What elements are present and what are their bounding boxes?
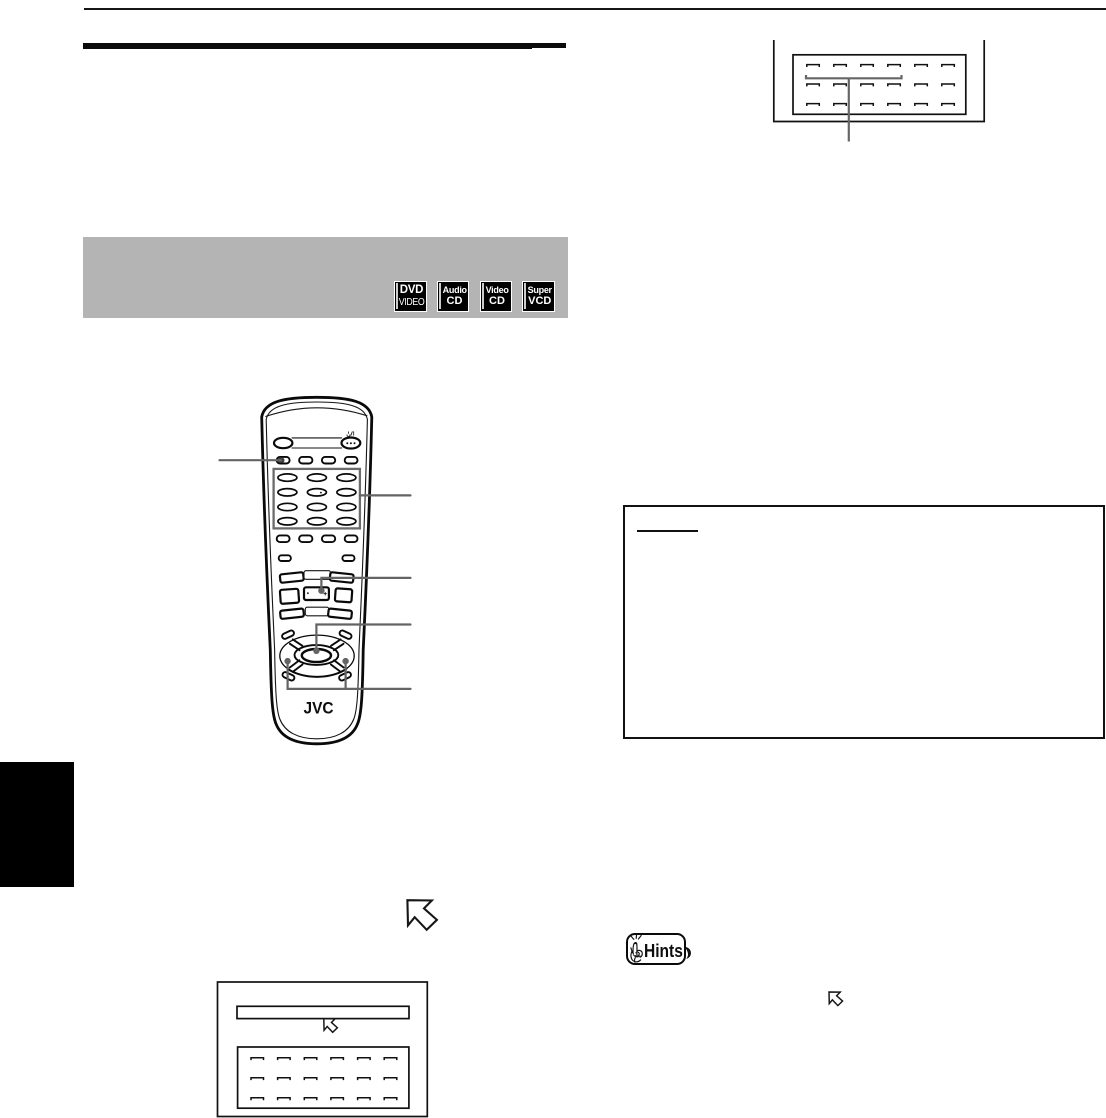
svg-text:JVC: JVC [304,699,334,717]
